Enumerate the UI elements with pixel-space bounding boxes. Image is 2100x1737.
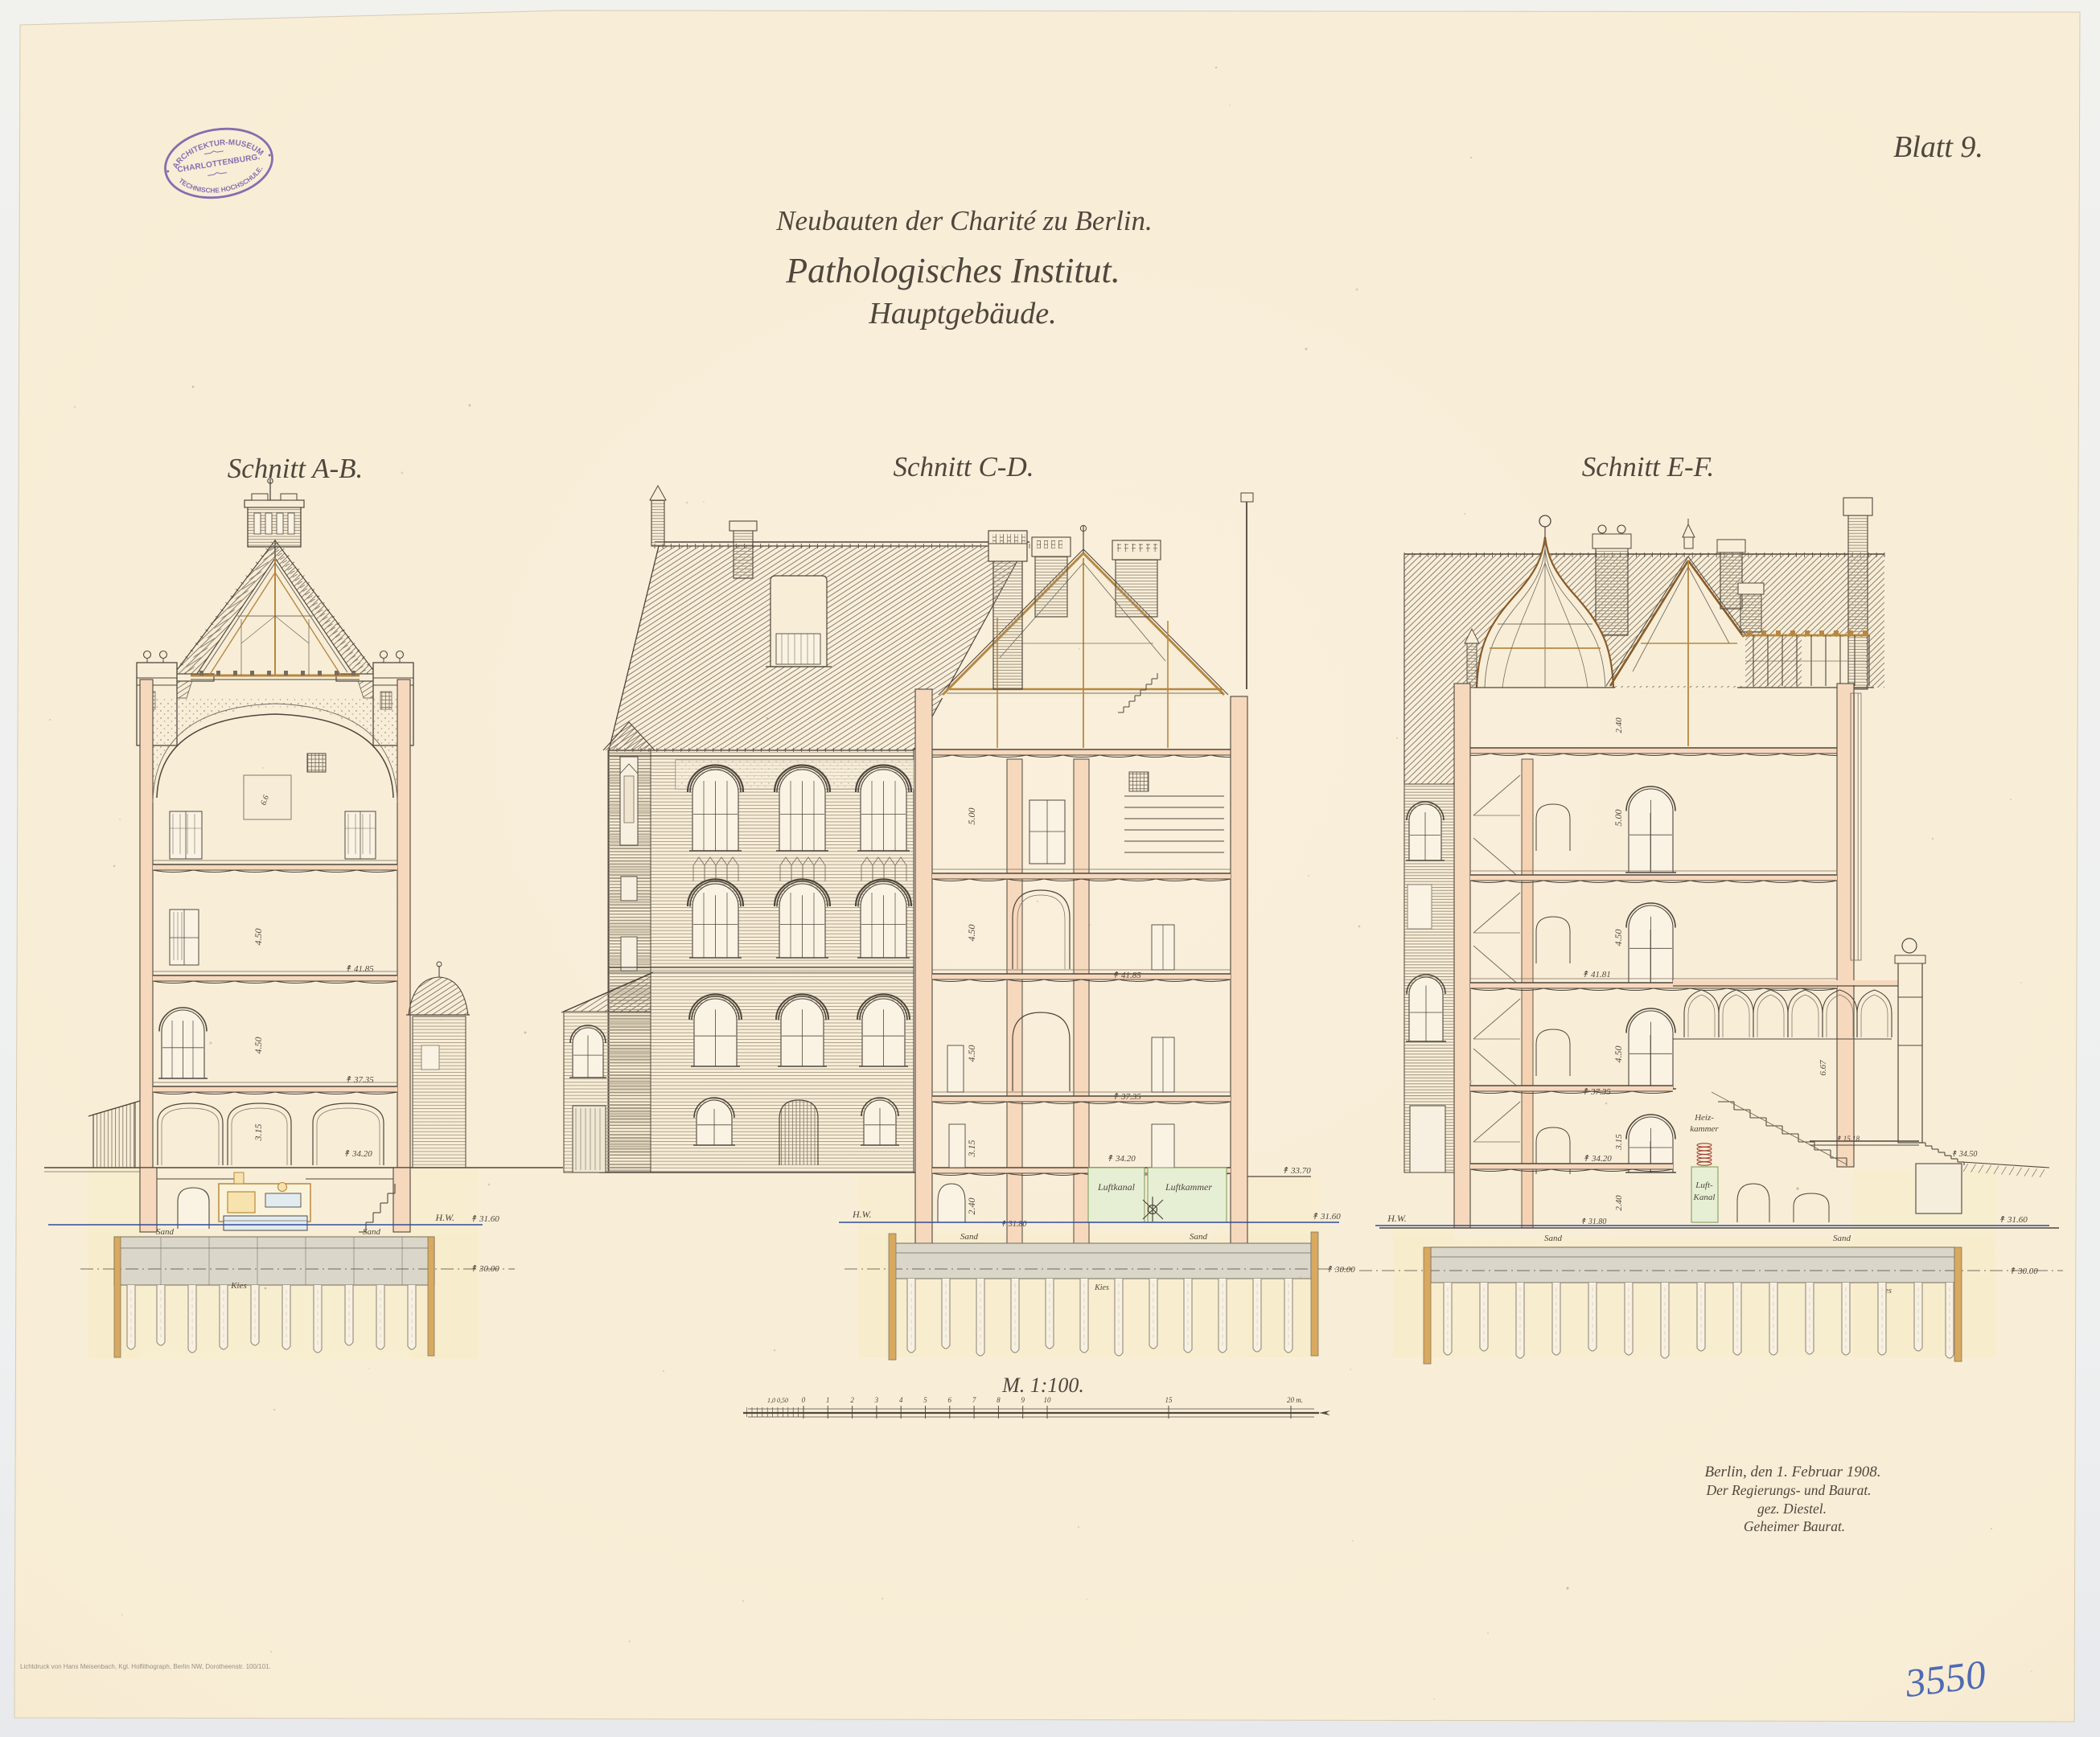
svg-text:↟ 41.85: ↟ 41.85 <box>1112 971 1141 980</box>
svg-text:↟ 41.81: ↟ 41.81 <box>1581 970 1611 979</box>
svg-text:Heiz-: Heiz- <box>1694 1113 1714 1123</box>
svg-text:8: 8 <box>997 1396 1001 1404</box>
svg-text:6: 6 <box>948 1396 952 1404</box>
svg-text:4.50: 4.50 <box>253 929 264 946</box>
svg-text:H.W.: H.W. <box>434 1212 454 1223</box>
svg-text:Pathologisches Institut.: Pathologisches Institut. <box>785 251 1120 290</box>
svg-text:4: 4 <box>899 1396 903 1404</box>
svg-text:↟ 33.70: ↟ 33.70 <box>1281 1166 1311 1176</box>
svg-text:Sand: Sand <box>363 1227 381 1237</box>
svg-text:Luft-: Luft- <box>1695 1181 1713 1190</box>
svg-text:3: 3 <box>874 1396 879 1404</box>
svg-text:0: 0 <box>802 1396 806 1404</box>
svg-text:Berlin, den 1. Februar 1908.: Berlin, den 1. Februar 1908. <box>1704 1464 1880 1480</box>
svg-text:Schnitt C-D.: Schnitt C-D. <box>894 451 1034 482</box>
svg-text:5.00: 5.00 <box>966 808 977 825</box>
svg-text:9: 9 <box>1021 1396 1025 1404</box>
svg-text:Sand: Sand <box>1544 1234 1563 1243</box>
svg-text:2.40: 2.40 <box>1614 1195 1624 1211</box>
svg-text:↟ 37.35: ↟ 37.35 <box>344 1075 374 1085</box>
svg-text:↟ 34.20: ↟ 34.20 <box>343 1149 372 1159</box>
svg-text:Luftkammer: Luftkammer <box>1165 1181 1212 1193</box>
svg-text:6.67: 6.67 <box>1818 1060 1828 1076</box>
svg-text:H.W.: H.W. <box>1387 1213 1407 1224</box>
svg-text:Kies: Kies <box>1094 1283 1109 1292</box>
svg-text:Luftkanal: Luftkanal <box>1097 1181 1136 1193</box>
svg-text:1,0 0,50: 1,0 0,50 <box>767 1397 788 1404</box>
svg-text:Sand: Sand <box>1833 1234 1851 1243</box>
svg-text:2.40: 2.40 <box>966 1198 977 1215</box>
svg-text:↟ 37.35: ↟ 37.35 <box>1112 1092 1141 1102</box>
svg-text:Schnitt E-F.: Schnitt E-F. <box>1582 451 1715 482</box>
svg-text:3.15: 3.15 <box>1614 1134 1624 1151</box>
svg-text:4.50: 4.50 <box>1613 930 1624 947</box>
svg-text:↟ 34.20: ↟ 34.20 <box>1106 1154 1136 1164</box>
svg-text:7: 7 <box>972 1396 976 1404</box>
svg-text:3.15: 3.15 <box>966 1140 977 1158</box>
svg-text:gez. Diestel.: gez. Diestel. <box>1757 1501 1827 1517</box>
svg-text:4.50: 4.50 <box>253 1037 264 1054</box>
svg-text:Kanal: Kanal <box>1693 1193 1716 1202</box>
svg-text:↟ 30.00: ↟ 30.00 <box>470 1264 499 1274</box>
svg-text:5: 5 <box>923 1396 927 1404</box>
svg-text:4.50: 4.50 <box>1613 1046 1624 1063</box>
svg-text:↟ 31.60: ↟ 31.60 <box>1311 1212 1341 1222</box>
svg-text:Sand: Sand <box>1190 1232 1208 1242</box>
svg-text:↟ 41.85: ↟ 41.85 <box>344 964 374 974</box>
svg-text:↟ 30.00: ↟ 30.00 <box>1325 1265 1355 1275</box>
svg-text:2: 2 <box>850 1396 854 1404</box>
svg-text:Blatt 9.: Blatt 9. <box>1893 130 1983 164</box>
svg-text:4.50: 4.50 <box>966 925 977 942</box>
svg-text:3.15: 3.15 <box>253 1124 264 1142</box>
svg-text:4.50: 4.50 <box>966 1045 977 1062</box>
svg-text:Sand: Sand <box>156 1227 175 1237</box>
svg-text:H.W.: H.W. <box>852 1209 872 1220</box>
svg-text:Geheimer Baurat.: Geheimer Baurat. <box>1744 1518 1845 1534</box>
svg-text:15: 15 <box>1165 1396 1173 1404</box>
svg-text:Schnitt A-B.: Schnitt A-B. <box>228 453 364 484</box>
svg-text:Hauptgebäude.: Hauptgebäude. <box>868 297 1056 331</box>
svg-text:↟ 37.35: ↟ 37.35 <box>1581 1087 1611 1097</box>
svg-text:Sand: Sand <box>960 1232 979 1242</box>
svg-text:↟ 34.20: ↟ 34.20 <box>1582 1154 1612 1164</box>
svg-text:5.00: 5.00 <box>1613 810 1624 827</box>
svg-text:↟ 31.80: ↟ 31.80 <box>1000 1220 1026 1229</box>
svg-text:↟ 34.50: ↟ 34.50 <box>1950 1150 1977 1159</box>
svg-text:↟ 15.18: ↟ 15.18 <box>1835 1135 1860 1143</box>
svg-text:20 m.: 20 m. <box>1287 1396 1303 1404</box>
svg-text:Neubauten der Charité zu Berli: Neubauten der Charité zu Berlin. <box>775 205 1153 236</box>
svg-text:↟ 31.60: ↟ 31.60 <box>470 1214 499 1224</box>
svg-text:Lichtdruck von Hans Meisenbach: Lichtdruck von Hans Meisenbach, Kgl. Hof… <box>20 1663 271 1670</box>
svg-text:Der Regierungs- und Baurat.: Der Regierungs- und Baurat. <box>1705 1482 1871 1498</box>
svg-text:kammer: kammer <box>1690 1124 1719 1134</box>
svg-text:↟ 30.00: ↟ 30.00 <box>2008 1267 2038 1276</box>
svg-text:M. 1:100.: M. 1:100. <box>1001 1374 1084 1397</box>
svg-text:1: 1 <box>826 1396 830 1404</box>
svg-text:10: 10 <box>1044 1396 1052 1404</box>
svg-text:2.40: 2.40 <box>1614 717 1624 733</box>
svg-text:Kies: Kies <box>230 1281 247 1291</box>
svg-text:↟ 31.60: ↟ 31.60 <box>1998 1215 2028 1225</box>
